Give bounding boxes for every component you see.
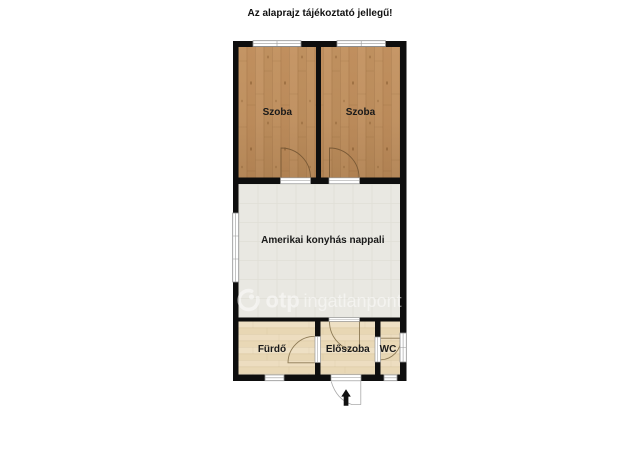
svg-text:WC: WC bbox=[380, 344, 397, 355]
svg-text:Előszoba: Előszoba bbox=[326, 344, 370, 355]
svg-text:Fürdő: Fürdő bbox=[258, 344, 286, 355]
svg-text:Amerikai konyhás nappali: Amerikai konyhás nappali bbox=[261, 235, 385, 246]
svg-text:Az alaprajz tájékoztató jelleg: Az alaprajz tájékoztató jellegű! bbox=[247, 8, 392, 19]
svg-text:ingatlanpont: ingatlanpont bbox=[304, 291, 402, 311]
svg-text:otp: otp bbox=[266, 288, 300, 313]
svg-text:Szoba: Szoba bbox=[263, 107, 293, 118]
svg-text:Szoba: Szoba bbox=[346, 107, 376, 118]
